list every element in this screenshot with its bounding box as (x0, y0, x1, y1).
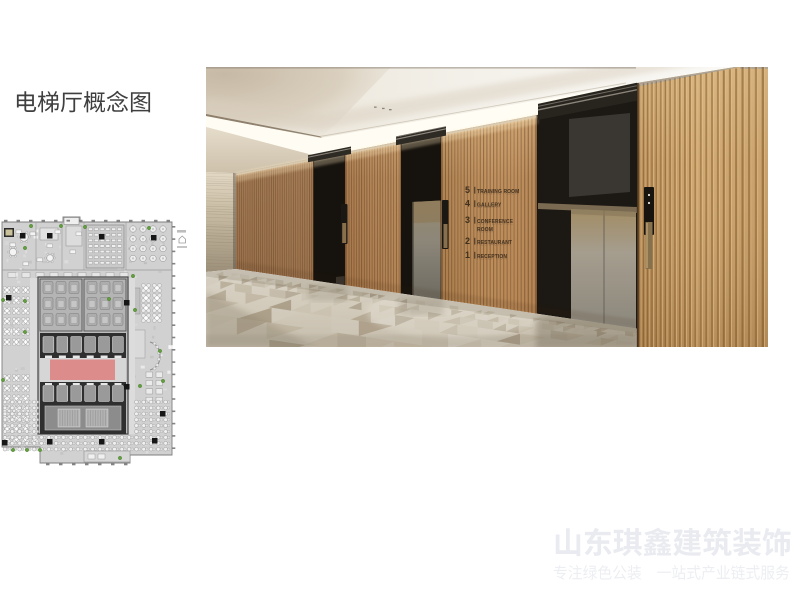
svg-text:CONFERENCE: CONFERENCE (477, 221, 514, 227)
svg-text:5: 5 (465, 185, 470, 195)
svg-text:RESTAURANT: RESTAURANT (477, 242, 512, 248)
svg-text:TRAINING ROOM: TRAINING ROOM (477, 191, 519, 197)
svg-text:4: 4 (465, 199, 470, 209)
svg-text:3: 3 (465, 215, 470, 225)
svg-text:1: 1 (465, 250, 470, 260)
svg-text:2: 2 (465, 236, 470, 246)
svg-text:ROOM: ROOM (477, 229, 493, 235)
svg-text:GALLERY: GALLERY (477, 204, 501, 210)
svg-text:RECEPTION: RECEPTION (477, 256, 507, 262)
